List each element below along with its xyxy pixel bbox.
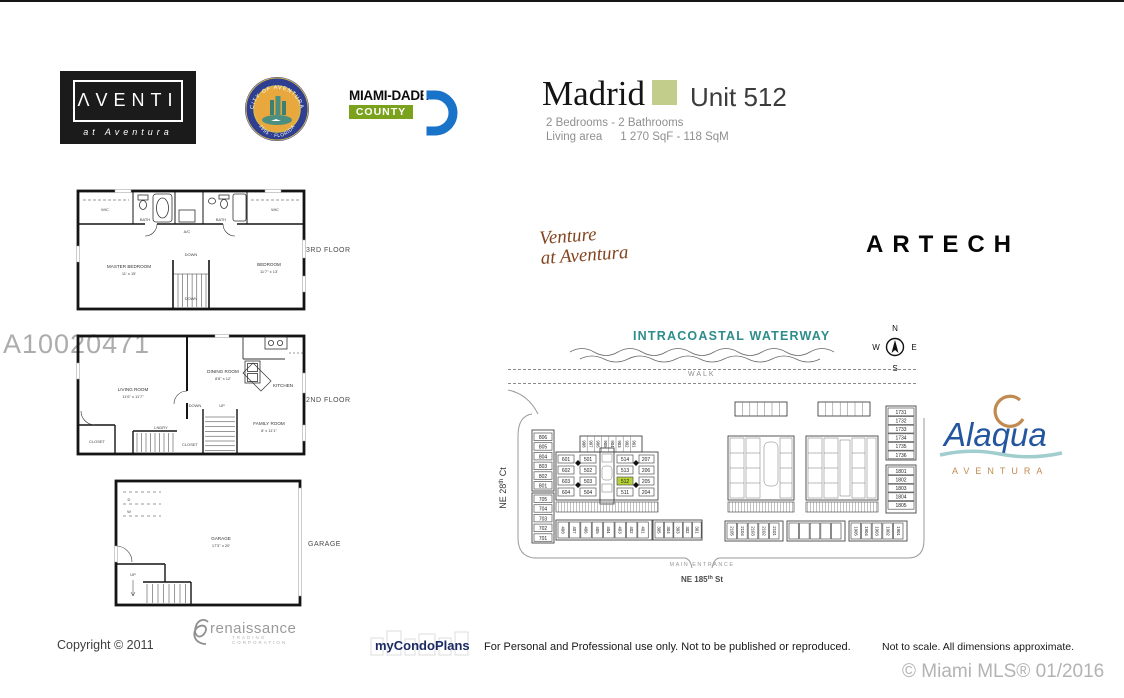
venture-at-aventura-logo: Venture at Aventura bbox=[539, 223, 629, 269]
unit-label: 2103 bbox=[751, 526, 756, 536]
unit-label: 511 bbox=[621, 490, 629, 496]
street-part: St bbox=[713, 575, 724, 584]
aventi-wordmark: ΛVENTI bbox=[73, 80, 183, 122]
unit-label: 501 bbox=[584, 457, 593, 463]
unit-label: 1903 bbox=[875, 526, 880, 536]
room-dim: 11'7" x 13' bbox=[260, 269, 278, 274]
floorplan-garage: D W UP GARAGE 17'3" x 20' bbox=[113, 478, 303, 608]
room-dim: 11'6" x 11'7" bbox=[122, 394, 144, 399]
aventi-logo: ΛVENTI at Aventura bbox=[60, 71, 196, 144]
room-dim: 8' x 11'1" bbox=[261, 428, 277, 433]
unit-label: 701 bbox=[539, 536, 548, 542]
unit-label: 1801 bbox=[895, 469, 906, 475]
unit-label: 1733 bbox=[895, 427, 906, 433]
city-of-aventura-seal: CITY OF AVENTURA 1995 · FLORIDA bbox=[243, 75, 311, 143]
unit-label: 2102 bbox=[761, 526, 766, 536]
floor-label-garage: GARAGE bbox=[308, 541, 341, 548]
unit-label: 305 bbox=[657, 526, 662, 534]
living-area-label: Living area bbox=[546, 131, 602, 143]
renaissance-flourish-icon bbox=[188, 616, 212, 648]
unit-label: 401 bbox=[640, 526, 645, 534]
unit-label: 803 bbox=[539, 464, 548, 470]
renaissance-logo: renaissance TRADING CORPORATION bbox=[188, 620, 308, 645]
room-label: WIC bbox=[101, 207, 109, 212]
unit-label: 1802 bbox=[895, 477, 906, 483]
unit-label: 602 bbox=[562, 468, 571, 474]
intracoastal-waterway-label: INTRACOASTAL WATERWAY bbox=[633, 329, 830, 343]
unit-label: 907 bbox=[589, 440, 594, 448]
room-label: A/C bbox=[184, 229, 191, 234]
unit-label: 905 bbox=[603, 440, 608, 448]
miami-mls-watermark: © Miami MLS® 01/2016 bbox=[902, 661, 1104, 683]
unit-label: 2105 bbox=[730, 526, 735, 536]
building-cluster-east-1 bbox=[728, 402, 794, 512]
unit-label: 604 bbox=[562, 490, 571, 496]
compass-n: N bbox=[892, 324, 898, 333]
walk-label: WALK bbox=[688, 371, 716, 378]
top-unit-row-900s: 908 907 906 905 904 903 902 901 bbox=[580, 436, 642, 452]
unit-label: 1902 bbox=[885, 526, 890, 536]
street-part: NE 28 bbox=[498, 484, 508, 509]
main-building-block: 601 602 603 604 501 502 503 504 514 513 … bbox=[556, 448, 658, 512]
unit-label: 704 bbox=[539, 507, 548, 513]
room-label: DOWN bbox=[189, 403, 202, 408]
building-cluster-east-2 bbox=[806, 402, 878, 512]
unit-label: 1803 bbox=[895, 486, 906, 492]
floor-label-3rd: 3RD FLOOR bbox=[306, 247, 351, 254]
title-accent-square bbox=[652, 80, 677, 105]
unit-label: 204 bbox=[642, 490, 651, 496]
unit-label: 902 bbox=[625, 440, 630, 448]
site-plan-map: NE 28th Ct 806 805 804 803 802 801 705 7… bbox=[488, 388, 938, 588]
unit-label: 901 bbox=[632, 440, 637, 448]
mycondoplans-logo: myCondoPlans bbox=[363, 626, 483, 656]
room-label: D bbox=[128, 497, 131, 502]
unit-label: 205 bbox=[642, 479, 651, 485]
alaqua-subtext: AVENTURA bbox=[952, 466, 1048, 476]
bottom-unit-rows: 408 407 406 405 404 403 402 401 305 304 … bbox=[556, 520, 702, 540]
room-label: CLOSET bbox=[89, 439, 106, 444]
mycondoplans-text: myCondoPlans bbox=[375, 638, 470, 653]
unit-label: 801 bbox=[539, 484, 548, 490]
unit-label: 303 bbox=[676, 526, 681, 534]
compass-e: E bbox=[911, 343, 916, 352]
unit-label: 1804 bbox=[895, 495, 906, 501]
unit-label: 2104 bbox=[740, 526, 745, 536]
far-bottom-unit-rows: 2105 2104 2103 2102 2101 1905 1904 1903 … bbox=[725, 521, 907, 541]
room-label: GARAGE bbox=[211, 536, 231, 541]
room-dim: 8'8" x 12' bbox=[215, 376, 231, 381]
unit-label: 408 bbox=[561, 526, 566, 534]
unit-label: 703 bbox=[539, 516, 548, 522]
unit-label: 301 bbox=[694, 526, 699, 534]
unit-label: 904 bbox=[610, 440, 615, 448]
walls-garage bbox=[116, 481, 300, 605]
unit-label: 502 bbox=[584, 468, 593, 474]
unit-label: 1905 bbox=[854, 526, 859, 536]
water-waves-icon bbox=[565, 344, 865, 364]
walk-path-lower-line bbox=[508, 383, 916, 384]
room-label: WIC bbox=[271, 207, 279, 212]
walls-3rd bbox=[78, 191, 304, 309]
unit-label: 601 bbox=[562, 457, 571, 463]
room-label: BATH bbox=[140, 217, 150, 222]
unit-label: 1732 bbox=[895, 418, 906, 424]
unit-label: 1901 bbox=[896, 526, 901, 536]
unit-label: 705 bbox=[539, 497, 548, 503]
room-label: FAMILY ROOM bbox=[253, 421, 285, 426]
artech-logo: ARTECH bbox=[866, 231, 1020, 259]
street-ne185st: NE 185th St bbox=[681, 575, 723, 584]
unit-label: 1805 bbox=[895, 503, 906, 509]
unit-label: 402 bbox=[629, 526, 634, 534]
unit-label: 903 bbox=[617, 440, 622, 448]
unit-label: 513 bbox=[621, 468, 630, 474]
room-dim: 17'3" x 20' bbox=[212, 543, 231, 548]
main-entrance-label: MAIN ENTRANCE bbox=[669, 562, 734, 568]
walk-path-upper-line bbox=[508, 369, 916, 370]
unit-number-title: Unit 512 bbox=[690, 82, 787, 113]
unit-label: 405 bbox=[595, 526, 600, 534]
street-ne28ct: NE 28th Ct bbox=[498, 467, 508, 509]
unit-label: 503 bbox=[584, 479, 593, 485]
unit-label: 403 bbox=[618, 526, 623, 534]
floor-label-2nd: 2ND FLOOR bbox=[306, 397, 351, 404]
unit-label: 908 bbox=[582, 440, 587, 448]
far-right-unit-strip: 1731 1732 1733 1734 1735 1736 1801 1802 … bbox=[886, 406, 916, 513]
scale-note: Not to scale. All dimensions approximate… bbox=[882, 641, 1074, 653]
unit-label: 1904 bbox=[864, 526, 869, 536]
unit-label: 806 bbox=[539, 435, 548, 441]
top-border bbox=[0, 0, 1124, 2]
living-area-value: 1 270 SqF - 118 SqM bbox=[620, 131, 728, 143]
room-label: UP bbox=[130, 572, 136, 577]
room-label: DINING ROOM bbox=[207, 369, 239, 374]
unit-label: 603 bbox=[562, 479, 571, 485]
miami-dade-logo: MIAMI-DADE COUNTY bbox=[349, 88, 459, 138]
unit-label: 1735 bbox=[895, 444, 906, 450]
room-label: UP bbox=[219, 403, 225, 408]
unit-label: 805 bbox=[539, 445, 548, 451]
unit-label: 802 bbox=[539, 474, 548, 480]
compass-w: W bbox=[872, 343, 880, 352]
alaqua-logo: Alaqua AVENTURA bbox=[938, 392, 1068, 487]
room-label: LIVING ROOM bbox=[118, 387, 149, 392]
unit-label: 302 bbox=[685, 526, 690, 534]
room-label: KITCHEN bbox=[273, 383, 293, 388]
unit-label: 906 bbox=[596, 440, 601, 448]
venture-line2: at Aventura bbox=[540, 243, 629, 269]
plan-title: Madrid bbox=[542, 74, 645, 114]
room-label: CLOSET bbox=[182, 442, 199, 447]
unit-label: 304 bbox=[666, 526, 671, 534]
street-part: NE 185 bbox=[681, 575, 708, 584]
street-part: Ct bbox=[498, 467, 508, 479]
alaqua-wordmark: Alaqua bbox=[942, 416, 1047, 453]
miami-dade-county-text: COUNTY bbox=[349, 105, 413, 119]
unit-label: 206 bbox=[642, 468, 651, 474]
unit-label: 2101 bbox=[772, 526, 777, 536]
compass-icon: N W E S bbox=[867, 320, 923, 374]
room-label: BATH bbox=[216, 217, 226, 222]
unit-label: 1731 bbox=[895, 410, 906, 416]
unit-label: 404 bbox=[606, 526, 611, 534]
left-unit-strip: 806 805 804 803 802 801 705 704 703 702 … bbox=[532, 430, 554, 543]
room-label: DOWN bbox=[185, 296, 198, 301]
copyright-text: Copyright © 2011 bbox=[57, 638, 154, 652]
unit-label-512: 512 bbox=[621, 479, 630, 485]
unit-label: 207 bbox=[642, 457, 651, 463]
fixtures-2nd bbox=[77, 335, 306, 453]
unit-label: 1736 bbox=[895, 453, 906, 459]
flyer-page: ΛVENTI at Aventura CITY OF AVENTURA 1995… bbox=[0, 0, 1124, 698]
aventi-tagline: at Aventura bbox=[60, 127, 196, 137]
floorplan-2nd-floor: LIVING ROOM 11'6" x 11'7" DINING ROOM 8'… bbox=[75, 333, 307, 457]
fixtures-garage bbox=[115, 488, 302, 603]
room-label: W bbox=[127, 509, 131, 514]
unit-label: 702 bbox=[539, 526, 548, 532]
unit-label: 1734 bbox=[895, 436, 906, 442]
unit-label: 504 bbox=[584, 490, 593, 496]
miami-dade-d-icon bbox=[411, 88, 461, 138]
usage-disclaimer: For Personal and Professional use only. … bbox=[484, 641, 851, 653]
unit-label: 406 bbox=[583, 526, 588, 534]
room-label: BEDROOM bbox=[257, 262, 281, 267]
living-area-line: Living area1 270 SqF - 118 SqM bbox=[546, 131, 729, 143]
bed-bath-specs: 2 Bedrooms - 2 Bathrooms bbox=[546, 117, 683, 129]
unit-label: 804 bbox=[539, 454, 548, 460]
unit-label: 407 bbox=[572, 526, 577, 534]
room-label: LNDRY bbox=[154, 425, 168, 430]
unit-label: 514 bbox=[621, 457, 630, 463]
room-dim: 11' x 15' bbox=[122, 271, 137, 276]
walls-2nd bbox=[78, 336, 304, 454]
floorplan-3rd-floor: WIC BATH BATH WIC A/C DOWN DOWN MASTER B… bbox=[75, 188, 307, 312]
room-label: DOWN bbox=[185, 252, 198, 257]
room-label: MASTER BEDROOM bbox=[107, 264, 151, 269]
